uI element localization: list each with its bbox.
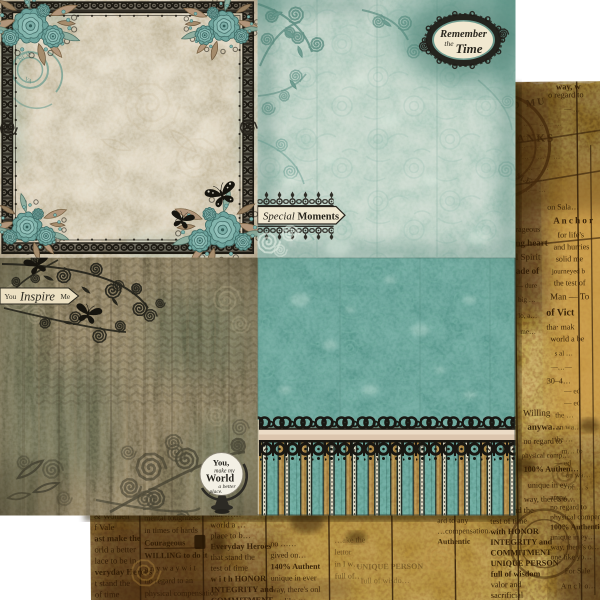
svg-text:lace to be in.: lace to be in.	[95, 555, 139, 565]
svg-text:— ed: — ed	[563, 386, 581, 395]
svg-text:A n c h o r: A n c h o r	[553, 215, 593, 225]
svg-text:m… to: m… to	[561, 446, 582, 455]
svg-text:Time: Time	[456, 41, 483, 56]
svg-text:unique in ey…: unique in ey…	[550, 532, 595, 541]
svg-text:test of time: test of time	[211, 563, 249, 572]
svg-text:gived on…: gived on…	[270, 550, 306, 559]
svg-text:sacrificial: sacrificial	[491, 591, 524, 600]
svg-text:journeyed b: journeyed b	[551, 267, 586, 275]
svg-text:an wa…: an wa…	[566, 470, 591, 479]
svg-text:A n c h o…: A n c h o…	[561, 581, 596, 590]
svg-text:You,: You,	[213, 458, 229, 468]
svg-text:lo, a…: lo, a…	[518, 312, 537, 320]
svg-text:place.: place.	[208, 489, 222, 495]
svg-text:and hurries: and hurries	[554, 242, 590, 251]
svg-text:world a be: world a be	[550, 334, 584, 343]
svg-text:on Sala…: on Sala…	[547, 202, 579, 211]
svg-text:Me: Me	[61, 293, 71, 301]
svg-text:way, there's o…: way, there's o…	[550, 542, 599, 551]
svg-text:Courageous: Courageous	[144, 538, 185, 547]
svg-text:o regard to: o regard to	[548, 90, 584, 99]
svg-text:140% Authent: 140% Authent	[271, 562, 321, 571]
svg-text:—…—: —…—	[550, 363, 573, 371]
svg-text:World: World	[206, 474, 235, 485]
svg-text:lettor: lettor	[334, 547, 351, 556]
svg-text:full of wisdom: full of wisdom	[491, 569, 541, 578]
svg-text:in times of hards: in times of hards	[144, 526, 198, 536]
svg-text:…compensation.: …compensation.	[437, 526, 490, 536]
svg-text:tha‧ mak: tha‧ mak	[546, 322, 574, 331]
svg-text:no ……: no ……	[270, 539, 296, 548]
svg-text:for life's: for life's	[557, 230, 584, 239]
svg-text:one like yo…: one like yo…	[551, 552, 592, 561]
svg-text:full of…: full of…	[335, 571, 363, 580]
svg-text:— …: — …	[563, 105, 580, 113]
svg-text:— ed: — ed	[563, 398, 581, 407]
svg-text:no regard to: no regard to	[550, 502, 587, 511]
svg-text:ast make the: ast make the	[94, 533, 141, 543]
svg-text:orld a better: orld a better	[94, 544, 136, 554]
svg-text:the test of: the test of	[554, 278, 586, 287]
svg-text:Willing: Willing	[523, 408, 551, 418]
svg-text:world a …: world a …	[210, 520, 246, 529]
svg-text:anyw…: anyw…	[550, 492, 574, 501]
svg-text:Moments: Moments	[298, 211, 340, 222]
svg-text:an wa…: an wa…	[556, 422, 581, 431]
svg-text:Special: Special	[263, 210, 295, 222]
svg-text:Inspire: Inspire	[19, 290, 55, 304]
svg-text:that stand the: that stand the	[210, 553, 255, 562]
svg-text:…— …— …: …— …— …	[522, 152, 561, 160]
svg-text:ANKS: ANKS	[516, 132, 555, 144]
svg-text:solid me: solid me	[556, 254, 584, 263]
svg-text:the …: the …	[554, 434, 573, 443]
svg-text:Man — To: Man — To	[550, 291, 590, 301]
svg-text:f Vale: f Vale	[94, 522, 114, 532]
svg-text:me…: me…	[520, 328, 536, 336]
svg-text:of Vict: of Vict	[546, 307, 575, 318]
svg-text:Authentic: Authentic	[437, 537, 471, 546]
svg-text:valor and: valor and	[491, 580, 522, 589]
svg-text:full of wisdo…: full of wisdo…	[361, 576, 410, 585]
svg-text:s al …: s al …	[555, 349, 573, 357]
svg-text:UNIQUE PERSON: UNIQUE PERSON	[357, 562, 424, 572]
svg-text:WILLING to do it: WILLING to do it	[144, 551, 207, 561]
svg-text:the …: the …	[555, 410, 574, 419]
svg-text:You: You	[5, 293, 17, 301]
svg-text:the: the	[444, 39, 454, 48]
svg-text:30–4…: 30–4…	[547, 376, 571, 385]
